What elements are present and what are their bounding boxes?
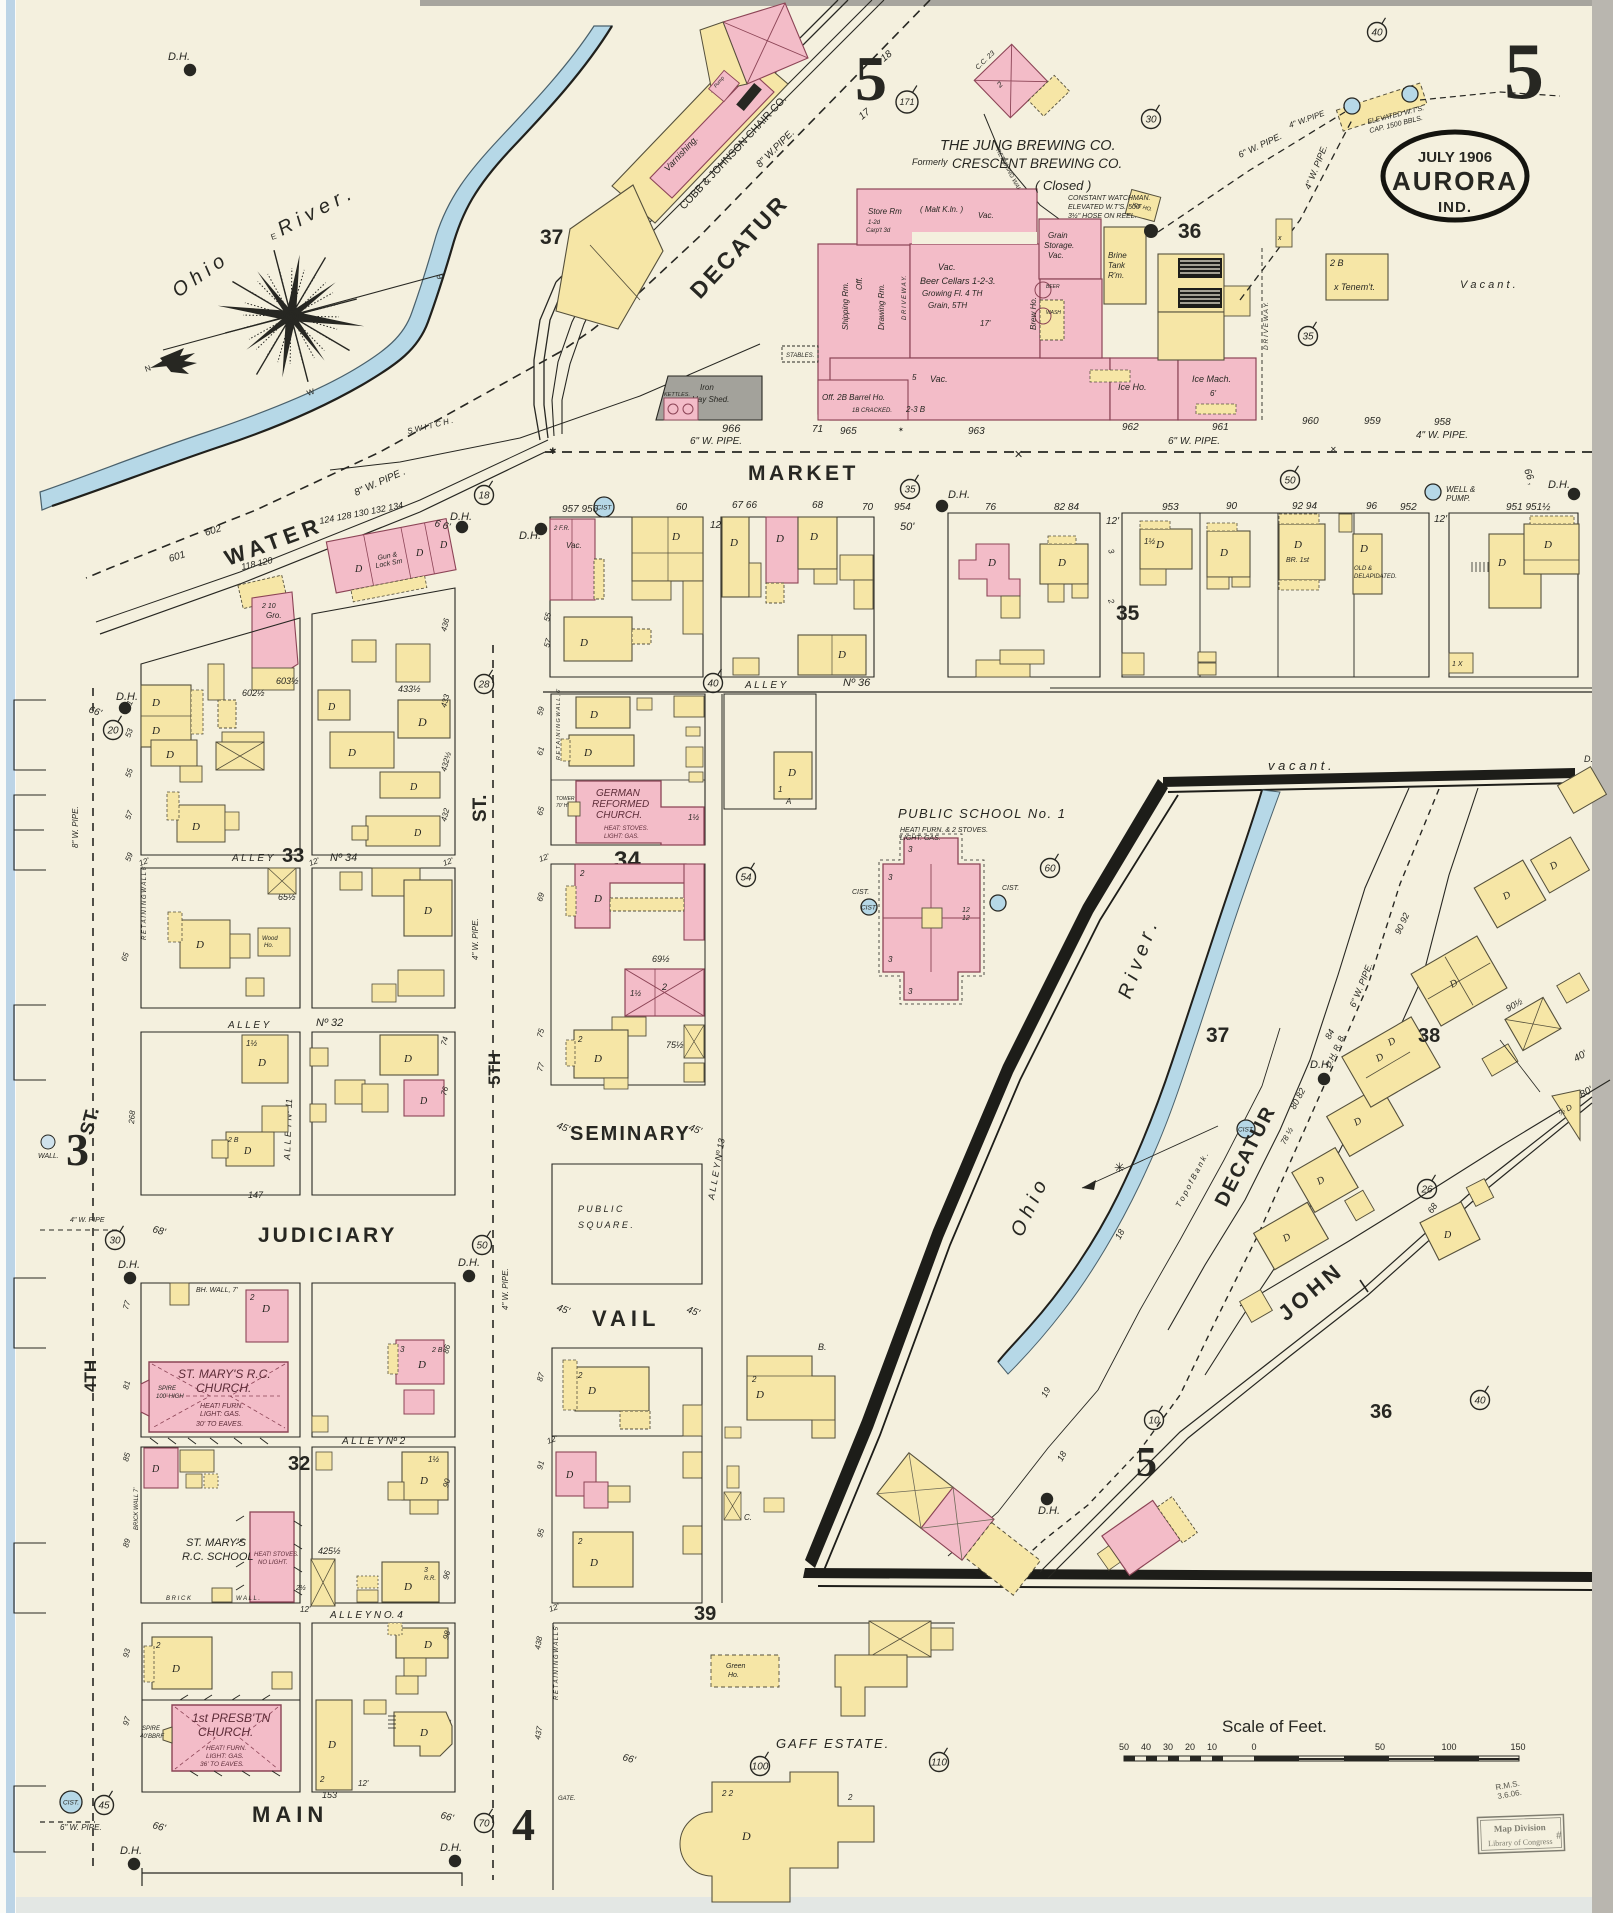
svg-text:5TH: 5TH — [485, 1053, 504, 1085]
svg-text:D: D — [1155, 539, 1164, 551]
svg-text:D: D — [171, 1663, 180, 1675]
svg-text:36: 36 — [1370, 1401, 1392, 1423]
svg-text:D R I V E W A Y.: D R I V E W A Y. — [1263, 302, 1270, 350]
svg-text:Vac.: Vac. — [938, 262, 956, 272]
svg-text:6" W. PIPE.: 6" W. PIPE. — [1168, 436, 1220, 447]
svg-text:CHURCH.: CHURCH. — [596, 810, 642, 821]
svg-text:ST.: ST. — [470, 795, 491, 822]
svg-text:D: D — [1057, 557, 1066, 569]
svg-text:#: # — [1556, 1830, 1562, 1842]
svg-text:951 951½: 951 951½ — [1506, 502, 1551, 513]
svg-text:50': 50' — [900, 521, 915, 533]
svg-text:D: D — [755, 1389, 764, 1401]
svg-text:1½: 1½ — [688, 813, 699, 822]
svg-text:2 F.R.: 2 F.R. — [553, 526, 570, 532]
svg-text:Vac.: Vac. — [566, 541, 582, 550]
svg-text:60: 60 — [1044, 864, 1056, 875]
svg-text:5: 5 — [912, 373, 917, 382]
svg-text:45: 45 — [98, 1801, 110, 1812]
svg-text:STABLES.: STABLES. — [786, 353, 814, 359]
svg-text:965: 965 — [840, 426, 857, 437]
svg-text:VAIL: VAIL — [592, 1306, 660, 1331]
svg-text:20: 20 — [106, 726, 119, 737]
svg-text:Shipping Rm.: Shipping Rm. — [841, 282, 850, 330]
svg-text:OLD &: OLD & — [1354, 566, 1372, 572]
svg-text:3: 3 — [888, 955, 893, 964]
svg-text:D: D — [419, 1475, 428, 1487]
svg-text:147: 147 — [248, 1190, 264, 1200]
svg-text:D: D — [257, 1057, 266, 1069]
svg-text:BR. 1st: BR. 1st — [1286, 557, 1310, 564]
svg-text:D: D — [565, 1470, 574, 1481]
svg-text:D: D — [165, 749, 174, 761]
svg-text:Nº 34: Nº 34 — [330, 852, 357, 864]
svg-text:Nº 36: Nº 36 — [843, 677, 871, 689]
svg-text:D: D — [151, 1464, 160, 1475]
svg-text:4" W. PIPE.: 4" W. PIPE. — [501, 1268, 510, 1310]
svg-text:R E T A I N I N G W A L L: R E T A I N I N G W A L L 5’ — [554, 1625, 560, 1700]
svg-text:x Tenem’t.: x Tenem’t. — [1333, 282, 1375, 292]
svg-text:2 2: 2 2 — [721, 1789, 734, 1798]
svg-text:GAFF ESTATE.: GAFF ESTATE. — [776, 1736, 890, 1751]
svg-text:3½" HOSE ON REEL.: 3½" HOSE ON REEL. — [1068, 212, 1137, 220]
svg-text:Drawing Rm.: Drawing Rm. — [877, 284, 886, 330]
svg-text:69½: 69½ — [652, 954, 670, 964]
svg-text:CIST.: CIST. — [852, 889, 869, 896]
svg-text:WELL &: WELL & — [1446, 485, 1475, 494]
svg-text:D R I V E W A Y.: D R I V E W A Y. — [902, 276, 908, 320]
svg-text:MARKET: MARKET — [748, 462, 859, 485]
svg-text:Tank: Tank — [1108, 261, 1126, 270]
svg-text:36: 36 — [1178, 220, 1201, 243]
svg-text:12': 12' — [1434, 514, 1448, 525]
svg-text:CIST.: CIST. — [1002, 885, 1019, 892]
svg-text:Carp't 3d: Carp't 3d — [866, 228, 891, 234]
svg-text:A L L E Y: A L L E Y — [231, 853, 275, 864]
svg-text:R.R.: R.R. — [424, 1576, 436, 1582]
svg-text:10: 10 — [1207, 1742, 1217, 1752]
svg-text:A L L E Y: A L L E Y — [744, 680, 788, 691]
svg-text:D: D — [1543, 539, 1552, 551]
svg-text:A L L E Y Nº 2: A L L E Y Nº 2 — [341, 1436, 406, 1447]
svg-text:Grain: Grain — [1048, 231, 1068, 240]
svg-text:433½: 433½ — [398, 684, 421, 694]
svg-text:35: 35 — [1302, 332, 1314, 343]
svg-text:Store Rm: Store Rm — [868, 207, 902, 216]
svg-text:A L L E Y N O. 4: A L L E Y N O. 4 — [329, 1610, 403, 1621]
svg-text:35: 35 — [904, 485, 916, 496]
svg-text:33: 33 — [282, 845, 304, 867]
svg-text:2: 2 — [577, 1035, 583, 1044]
svg-text:D: D — [775, 533, 784, 545]
svg-text:40’BBRF: 40’BBRF — [140, 1734, 164, 1740]
svg-text:54: 54 — [740, 873, 752, 884]
svg-text:D: D — [587, 1385, 596, 1397]
svg-text:D: D — [671, 531, 680, 543]
svg-text:153: 153 — [322, 1790, 337, 1800]
svg-text:12: 12 — [962, 915, 970, 922]
svg-text:NO LIGHT.: NO LIGHT. — [258, 1560, 288, 1566]
svg-text:GATE.: GATE. — [558, 1796, 576, 1802]
svg-text:3: 3 — [424, 1567, 428, 1574]
svg-text:100’ HIGH: 100’ HIGH — [156, 1394, 184, 1400]
svg-text:✕: ✕ — [1330, 445, 1337, 454]
svg-text:D: D — [589, 1557, 598, 1569]
svg-text:3: 3 — [888, 873, 893, 882]
svg-text:D.H.: D.H. — [120, 1845, 142, 1857]
svg-text:✳: ✳ — [1114, 1160, 1125, 1175]
svg-text:D: D — [1443, 1230, 1452, 1241]
svg-text:D: D — [354, 564, 363, 575]
svg-text:BEER: BEER — [1046, 284, 1060, 290]
svg-text:50: 50 — [476, 1241, 488, 1252]
svg-text:Ho.: Ho. — [264, 943, 273, 949]
svg-text:1½: 1½ — [1144, 537, 1155, 546]
svg-text:D.H.: D.H. — [440, 1842, 462, 1854]
svg-text:D.H.: D.H. — [116, 691, 138, 703]
svg-text:v a c a n t .: v a c a n t . — [1268, 758, 1332, 773]
svg-text:Ho.: Ho. — [728, 1672, 739, 1679]
svg-text:32: 32 — [288, 1453, 310, 1475]
svg-text:D: D — [417, 715, 427, 729]
svg-text:JUDICIARY: JUDICIARY — [258, 1224, 397, 1247]
svg-text:D: D — [593, 893, 602, 905]
svg-text:Growing Fl. 4 TH: Growing Fl. 4 TH — [922, 289, 983, 298]
svg-text:Nº 32: Nº 32 — [316, 1017, 343, 1029]
svg-text:2: 2 — [847, 1793, 853, 1802]
svg-text:960: 960 — [1302, 416, 1319, 427]
svg-text:Map Division: Map Division — [1494, 1822, 1546, 1834]
svg-text:WASH: WASH — [1046, 310, 1061, 316]
svg-text:D: D — [419, 1096, 428, 1107]
svg-text:SPIRE: SPIRE — [158, 1386, 177, 1392]
svg-text:60: 60 — [676, 502, 688, 513]
svg-text:BH. WALL, 7': BH. WALL, 7' — [196, 1287, 238, 1294]
svg-text:1 X: 1 X — [1452, 661, 1463, 668]
svg-text:CONSTANT WATCHMAN.: CONSTANT WATCHMAN. — [1068, 195, 1150, 202]
svg-text:GERMAN: GERMAN — [596, 788, 641, 799]
svg-text:LIGHT: GAS.: LIGHT: GAS. — [200, 1411, 241, 1418]
svg-text:D: D — [729, 537, 738, 549]
svg-text:PUMP.: PUMP. — [1446, 494, 1470, 503]
svg-text:10: 10 — [1148, 1416, 1160, 1427]
svg-text:1½: 1½ — [428, 1455, 439, 1464]
svg-text:Ice Ho.: Ice Ho. — [1118, 382, 1147, 392]
svg-text:WALL.: WALL. — [38, 1153, 59, 1160]
svg-text:0: 0 — [1251, 1742, 1256, 1752]
svg-text:D: D — [809, 531, 818, 543]
svg-text:TOWER: TOWER — [556, 796, 575, 802]
svg-text:2 10: 2 10 — [261, 603, 276, 610]
svg-text:963: 963 — [968, 426, 985, 437]
svg-text:D: D — [579, 637, 588, 649]
svg-text:R E T A I N I N G W A L L ,: R E T A I N I N G W A L L , 6’ — [556, 688, 562, 760]
svg-text:D.H.: D.H. — [168, 51, 190, 63]
svg-text:71: 71 — [812, 424, 823, 435]
svg-text:SEMINARY: SEMINARY — [570, 1123, 691, 1145]
svg-text:HEAT! FURN. & 2 STOVES.: HEAT! FURN. & 2 STOVES. — [900, 827, 988, 834]
svg-text:4" W. PIPE: 4" W. PIPE — [70, 1217, 105, 1224]
svg-text:1: 1 — [778, 785, 782, 794]
svg-text:HEAT: STOVES.: HEAT: STOVES. — [604, 826, 648, 832]
svg-text:36’ TO EAVES.: 36’ TO EAVES. — [200, 1761, 244, 1768]
svg-text:✕: ✕ — [1014, 449, 1023, 461]
svg-text:Storage.: Storage. — [1044, 241, 1074, 250]
svg-text:CIST.: CIST. — [861, 904, 877, 911]
svg-text:425½: 425½ — [318, 1546, 341, 1556]
svg-text:12': 12' — [300, 1605, 311, 1614]
svg-text:BRICK WALL 7’: BRICK WALL 7’ — [134, 1487, 140, 1530]
svg-text:Gro.: Gro. — [266, 611, 282, 620]
svg-text:D: D — [1359, 543, 1368, 555]
svg-text:W A L L .: W A L L . — [236, 1596, 260, 1602]
svg-text:D: D — [419, 1727, 428, 1739]
svg-text:Green: Green — [726, 1663, 746, 1670]
svg-text:20: 20 — [1185, 1742, 1195, 1752]
svg-text:D.H.: D.H. — [1548, 479, 1570, 491]
svg-text:Grain, 5TH: Grain, 5TH — [928, 301, 967, 310]
svg-text:268: 268 — [127, 1110, 137, 1126]
svg-text:50: 50 — [1375, 1742, 1385, 1752]
svg-text:150: 150 — [1510, 1742, 1525, 1752]
svg-text:100: 100 — [752, 1762, 769, 1773]
svg-text:D: D — [987, 557, 996, 569]
svg-text:40: 40 — [1474, 1396, 1486, 1407]
svg-text:✱: ✱ — [549, 446, 557, 456]
svg-text:DELAPIDATED.: DELAPIDATED. — [1354, 574, 1397, 580]
svg-text:C.: C. — [744, 1513, 752, 1522]
svg-text:76: 76 — [985, 502, 997, 513]
svg-text:30’ TO EAVES.: 30’ TO EAVES. — [196, 1421, 243, 1428]
svg-text:D: D — [327, 702, 336, 713]
svg-text:D: D — [403, 1581, 412, 1593]
svg-text:CIST: CIST — [597, 504, 613, 511]
svg-text:12': 12' — [358, 1779, 369, 1788]
svg-text:( Closed ): ( Closed ) — [1035, 178, 1091, 193]
svg-text:R.C. SCHOOL: R.C. SCHOOL — [182, 1551, 254, 1563]
svg-text:SPIRE: SPIRE — [142, 1726, 161, 1732]
svg-text:LIGHT: GAS.: LIGHT: GAS. — [206, 1753, 244, 1760]
svg-text:Off. 2B Barrel Ho.: Off. 2B Barrel Ho. — [822, 393, 885, 402]
svg-text:D.H.: D.H. — [1038, 1505, 1060, 1517]
svg-text:B R I C K: B R I C K — [166, 1596, 192, 1602]
svg-text:D: D — [1497, 557, 1506, 569]
svg-text:952: 952 — [1400, 502, 1417, 513]
svg-text:50: 50 — [1119, 1742, 1129, 1752]
svg-text:958: 958 — [1434, 417, 1451, 428]
svg-text:Off.: Off. — [855, 277, 864, 290]
svg-text:Beer Cellars 1-2-3.: Beer Cellars 1-2-3. — [920, 276, 996, 286]
svg-text:D: D — [593, 1053, 602, 1065]
svg-text:Vac.: Vac. — [978, 211, 994, 220]
svg-text:ST. MARY'S R.C.: ST. MARY'S R.C. — [178, 1367, 271, 1381]
svg-text:2: 2 — [751, 1375, 757, 1384]
svg-text:D: D — [423, 1639, 432, 1651]
svg-text:8" W. PIPE.: 8" W. PIPE. — [71, 806, 80, 848]
svg-text:D: D — [191, 821, 200, 833]
svg-text:HEAT! STOVES.: HEAT! STOVES. — [254, 1552, 299, 1558]
svg-text:AURORA: AURORA — [1392, 166, 1518, 196]
svg-text:40: 40 — [1141, 1742, 1151, 1752]
svg-text:30: 30 — [1163, 1742, 1173, 1752]
svg-text:966: 966 — [722, 423, 741, 435]
svg-text:D: D — [413, 828, 422, 839]
svg-text:962: 962 — [1122, 422, 1139, 433]
svg-text:75½: 75½ — [666, 1040, 684, 1050]
svg-text:CRESCENT BREWING CO.: CRESCENT BREWING CO. — [952, 156, 1122, 171]
svg-text:JULY 1906: JULY 1906 — [1418, 149, 1492, 166]
svg-text:1st PRESB'TN: 1st PRESB'TN — [192, 1711, 271, 1725]
svg-text:2 B: 2 B — [227, 1137, 239, 1144]
svg-text:30: 30 — [1145, 115, 1157, 126]
svg-text:3: 3 — [908, 845, 913, 854]
svg-text:D: D — [403, 1053, 412, 1065]
svg-text:B.: B. — [818, 1342, 827, 1352]
svg-text:MAIN: MAIN — [252, 1802, 328, 1827]
svg-text:961: 961 — [1212, 422, 1229, 433]
svg-text:953: 953 — [1162, 502, 1179, 513]
svg-text:6': 6' — [1210, 389, 1216, 398]
svg-text:3: 3 — [400, 1345, 405, 1354]
svg-text:V a c a n t .: V a c a n t . — [1460, 279, 1516, 291]
svg-text:602½: 602½ — [242, 688, 265, 698]
svg-text:2: 2 — [577, 1371, 583, 1380]
svg-text:2: 2 — [249, 1293, 255, 1302]
svg-text:2: 2 — [661, 982, 667, 992]
svg-text:37: 37 — [540, 226, 563, 249]
svg-text:D: D — [423, 905, 432, 917]
svg-text:68: 68 — [812, 500, 824, 511]
svg-text:1½: 1½ — [246, 1039, 257, 1048]
svg-text:67 66: 67 66 — [732, 500, 757, 511]
svg-text:D: D — [589, 709, 598, 721]
svg-text:12: 12 — [962, 907, 970, 914]
svg-text:Vac.: Vac. — [930, 374, 948, 384]
svg-text:4TH: 4TH — [81, 1360, 100, 1392]
svg-text:D: D — [327, 1739, 336, 1751]
svg-text:THE JUNG BREWING CO.: THE JUNG BREWING CO. — [940, 138, 1116, 154]
svg-text:x: x — [1277, 235, 1282, 242]
svg-text:D: D — [243, 1146, 252, 1157]
svg-text:S Q U A R E .: S Q U A R E . — [578, 1220, 633, 1230]
svg-text:D: D — [151, 725, 160, 737]
svg-text:17': 17' — [980, 319, 991, 328]
svg-text:37: 37 — [1206, 1024, 1229, 1047]
svg-text:30: 30 — [109, 1236, 121, 1247]
svg-text:Wood: Wood — [262, 936, 278, 942]
svg-text:D: D — [439, 540, 448, 551]
svg-text:D.H.: D.H. — [118, 1259, 140, 1271]
svg-text:3: 3 — [908, 987, 913, 996]
svg-text:D.: D. — [1584, 754, 1593, 764]
svg-text:Scale of Feet.: Scale of Feet. — [1222, 1717, 1327, 1736]
svg-text:6" W. PIPE.: 6" W. PIPE. — [690, 436, 742, 447]
svg-text:171: 171 — [899, 97, 914, 107]
svg-text:2: 2 — [319, 1775, 325, 1784]
svg-text:28: 28 — [477, 680, 490, 691]
svg-text:5: 5 — [1504, 28, 1544, 116]
svg-text:D: D — [347, 747, 356, 759]
svg-text:LIGHT: GAS.: LIGHT: GAS. — [604, 834, 639, 840]
svg-text:CIST.: CIST. — [63, 1799, 79, 1806]
svg-text:70: 70 — [862, 502, 874, 513]
svg-text:ELEVATED W.T'S. 500': ELEVATED W.T'S. 500' — [1068, 204, 1142, 211]
svg-text:Formerly: Formerly — [912, 157, 948, 167]
svg-text:4" W. PIPE.: 4" W. PIPE. — [1416, 430, 1468, 441]
svg-text:HEAT! FURN.: HEAT! FURN. — [200, 1403, 243, 1410]
svg-text:KETTLES.: KETTLES. — [664, 392, 690, 398]
svg-text:26: 26 — [1420, 1185, 1433, 1196]
svg-text:Vac.: Vac. — [1048, 251, 1064, 260]
svg-text:D.H.: D.H. — [948, 489, 970, 501]
svg-text:39: 39 — [694, 1603, 716, 1625]
svg-text:D: D — [417, 1359, 426, 1371]
svg-text:4: 4 — [512, 1799, 535, 1850]
svg-text:4" W. PIPE.: 4" W. PIPE. — [471, 918, 480, 960]
svg-text:Brew Ho.: Brew Ho. — [1029, 297, 1038, 330]
svg-text:D.H.: D.H. — [450, 511, 472, 523]
svg-text:100: 100 — [1441, 1742, 1456, 1752]
svg-text:D.H.: D.H. — [458, 1257, 480, 1269]
svg-text:2: 2 — [579, 869, 585, 878]
svg-text:110: 110 — [931, 1758, 947, 1769]
svg-text:Iron: Iron — [700, 383, 714, 392]
svg-text:D.H.: D.H. — [519, 530, 541, 542]
svg-text:HEAT! FURN.: HEAT! FURN. — [206, 1745, 247, 1752]
svg-text:1½: 1½ — [630, 989, 641, 998]
svg-text:D: D — [409, 782, 418, 793]
svg-text:90: 90 — [1226, 501, 1238, 512]
svg-text:50: 50 — [1284, 476, 1296, 487]
svg-text:5: 5 — [1136, 1440, 1157, 1486]
svg-text:Ice Mach.: Ice Mach. — [1192, 374, 1231, 384]
svg-text:6" W. PIPE.: 6" W. PIPE. — [60, 1823, 102, 1832]
svg-text:70: 70 — [478, 1819, 490, 1830]
svg-text:✶: ✶ — [898, 426, 904, 434]
svg-text:R'm.: R'm. — [1108, 271, 1124, 280]
svg-text:CHURCH.: CHURCH. — [196, 1381, 251, 1395]
svg-text:LIGHT: GAS.: LIGHT: GAS. — [900, 835, 941, 842]
svg-text:A: A — [785, 797, 791, 806]
svg-text:92 94: 92 94 — [1292, 501, 1317, 512]
svg-text:2: 2 — [577, 1537, 583, 1546]
svg-text:40: 40 — [1371, 28, 1383, 39]
svg-text:959: 959 — [1364, 416, 1381, 427]
svg-text:A L L E Y: A L L E Y — [227, 1020, 271, 1031]
svg-text:70’ HI: 70’ HI — [556, 803, 569, 809]
svg-text:Brine: Brine — [1108, 251, 1127, 260]
svg-text:2 B: 2 B — [1329, 258, 1344, 268]
svg-text:954: 954 — [894, 502, 911, 513]
svg-text:957 956: 957 956 — [562, 504, 599, 515]
svg-text:CHURCH.: CHURCH. — [198, 1725, 253, 1739]
svg-text:18: 18 — [478, 491, 490, 502]
svg-text:2: 2 — [155, 1641, 161, 1650]
svg-text:P U B L I C: P U B L I C — [578, 1204, 623, 1214]
svg-text:D: D — [1219, 547, 1228, 559]
svg-text:PUBLIC SCHOOL No. 1: PUBLIC SCHOOL No. 1 — [898, 806, 1066, 821]
svg-text:REFORMED: REFORMED — [592, 799, 649, 810]
svg-text:603½: 603½ — [276, 676, 299, 686]
svg-text:12': 12' — [1106, 516, 1120, 527]
svg-text:2-3 B: 2-3 B — [905, 405, 926, 414]
svg-text:96: 96 — [1366, 501, 1378, 512]
svg-text:D: D — [837, 649, 846, 661]
svg-text:38: 38 — [1418, 1025, 1440, 1047]
svg-text:1-2d: 1-2d — [868, 220, 881, 226]
svg-text:D: D — [151, 697, 160, 709]
svg-text:D: D — [195, 939, 204, 951]
